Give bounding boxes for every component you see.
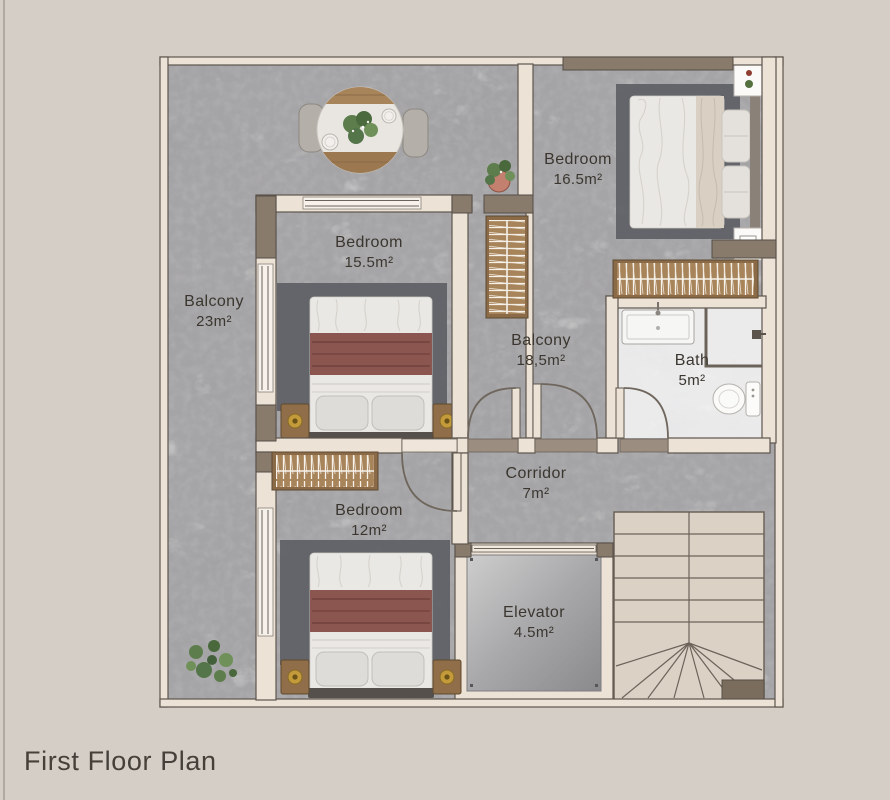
room-label-balcony-23: Balcony 23m² xyxy=(184,292,244,332)
room-label-balcony-18: Balcony 18,5m² xyxy=(511,331,571,371)
room-label-bath: Bath 5m² xyxy=(675,351,710,391)
floor-plan-canvas xyxy=(0,0,890,800)
wardrobe-hangers-icon xyxy=(613,260,758,298)
toilet-icon xyxy=(713,382,760,416)
room-label-corridor: Corridor 7m² xyxy=(506,464,567,504)
room-label-bedroom-15: Bedroom 15.5m² xyxy=(335,233,403,273)
room-label-bedroom-12: Bedroom 12m² xyxy=(335,501,403,541)
wardrobe-hangers-icon xyxy=(486,216,528,318)
staircase-icon xyxy=(614,512,764,700)
door-sills xyxy=(402,439,668,452)
double-bed-icon xyxy=(616,84,760,239)
room-label-elevator: Elevator 4.5m² xyxy=(503,603,565,643)
wardrobe-hangers-icon xyxy=(272,452,378,490)
chair-icon xyxy=(403,109,428,157)
room-label-bedroom-16: Bedroom 16.5m² xyxy=(544,150,612,190)
page-title: First Floor Plan xyxy=(24,746,217,777)
